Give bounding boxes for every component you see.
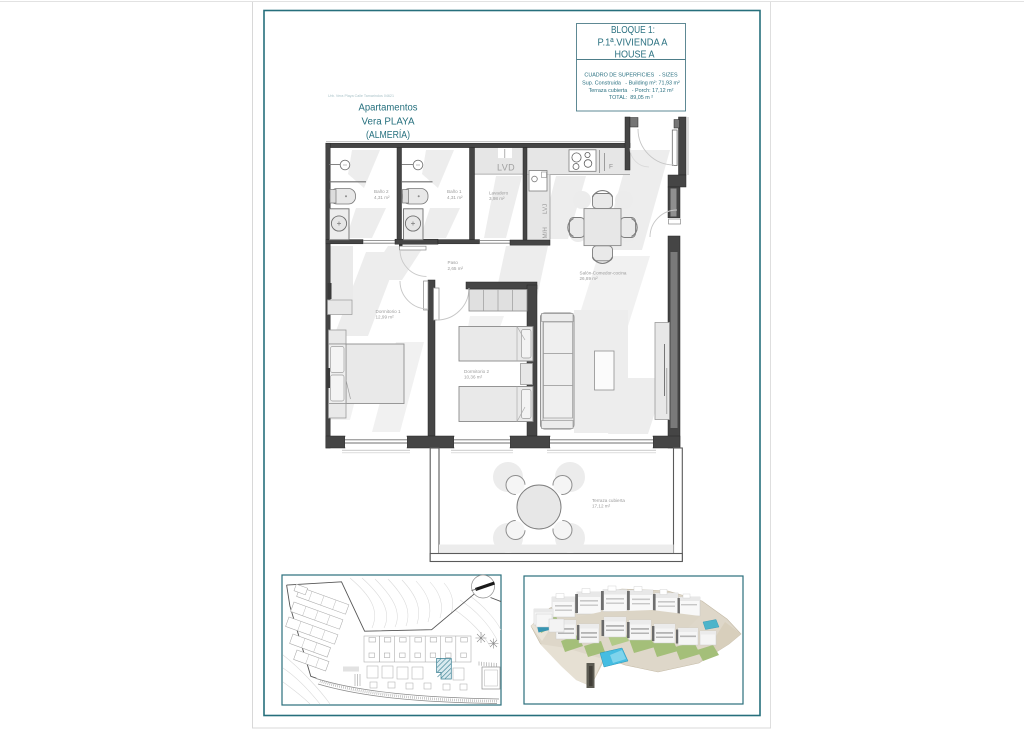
svg-text:Sup. Construida - Building m: Sup. Construida - Building m²: 71,93 m² <box>582 80 680 86</box>
svg-text:Dormitorio 1: Dormitorio 1 <box>376 309 401 314</box>
svg-text:3,98 m²: 3,98 m² <box>489 196 505 201</box>
svg-text:LVJ: LVJ <box>542 204 549 214</box>
svg-text:4,31 m²: 4,31 m² <box>447 195 463 200</box>
svg-text:Baño 2: Baño 2 <box>374 189 389 194</box>
svg-text:Lavadero: Lavadero <box>489 190 509 195</box>
svg-text:M/H: M/H <box>542 227 549 238</box>
svg-text:4,31 m²: 4,31 m² <box>374 195 390 200</box>
svg-text:Terraza cubierta - Porch: 17: Terraza cubierta - Porch: 17,12 m² <box>589 88 674 94</box>
svg-text:F: F <box>609 164 613 171</box>
svg-text:Urb. Vera Playa Calle Tamarind: Urb. Vera Playa Calle Tamarindos 04621 <box>328 94 394 98</box>
svg-text:(ALMERÍA): (ALMERÍA) <box>366 128 410 141</box>
svg-text:BLOQUE 1:: BLOQUE 1: <box>611 25 655 36</box>
svg-text:Paso: Paso <box>448 260 459 265</box>
svg-text:Apartamentos: Apartamentos <box>359 103 418 114</box>
svg-text:Salón-Comedor-cocina: Salón-Comedor-cocina <box>580 270 627 275</box>
svg-text:2,65 m²: 2,65 m² <box>448 266 464 271</box>
svg-text:Terraza cubierta: Terraza cubierta <box>592 498 625 503</box>
svg-text:TOTAL: 89,05 m ²: TOTAL: 89,05 m ² <box>609 95 653 101</box>
svg-text:26,89 m²: 26,89 m² <box>580 276 599 281</box>
svg-text:HOUSE A: HOUSE A <box>615 49 655 60</box>
svg-text:10,36 m²: 10,36 m² <box>464 375 483 380</box>
svg-text:CUADRO DE SUPERFICIES - SIZE: CUADRO DE SUPERFICIES - SIZES <box>584 73 678 79</box>
svg-text:Vera PLAYA: Vera PLAYA <box>362 117 415 128</box>
svg-text:12,99 m²: 12,99 m² <box>376 315 395 320</box>
svg-text:LVD: LVD <box>497 162 515 172</box>
svg-text:Baño 1: Baño 1 <box>447 189 462 194</box>
svg-text:17,12 m²: 17,12 m² <box>592 504 611 509</box>
svg-text:P.1ª.VIVIENDA A: P.1ª.VIVIENDA A <box>598 37 668 48</box>
svg-text:Dormitorio 2: Dormitorio 2 <box>464 369 489 374</box>
